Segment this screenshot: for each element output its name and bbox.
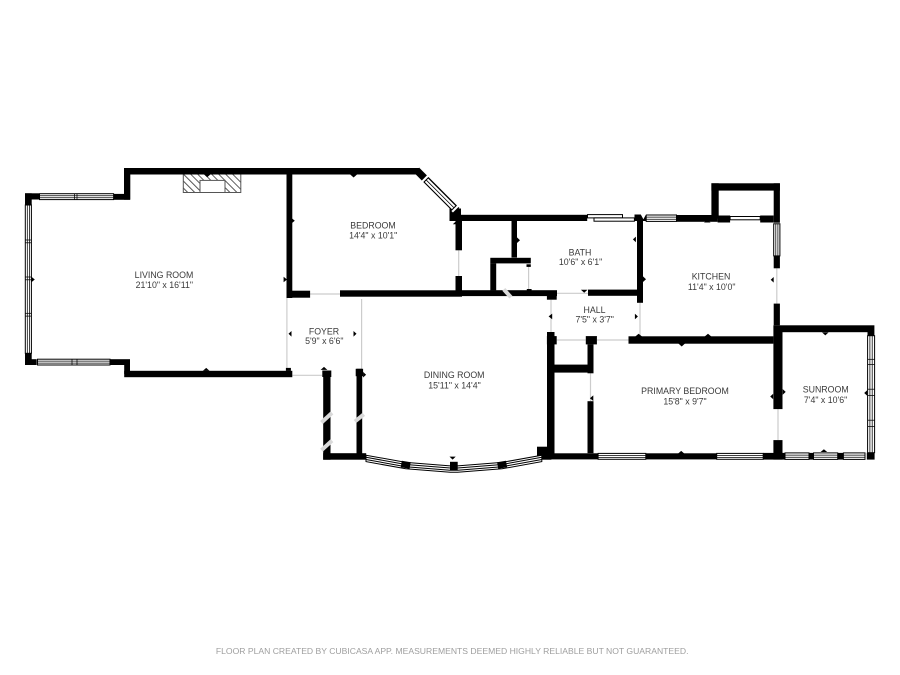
svg-text:BATH: BATH bbox=[569, 247, 592, 257]
svg-text:FOYER: FOYER bbox=[309, 326, 339, 336]
svg-text:7'4" x 10'6": 7'4" x 10'6" bbox=[804, 395, 847, 405]
svg-text:KITCHEN: KITCHEN bbox=[692, 272, 731, 282]
svg-text:PRIMARY BEDROOM: PRIMARY BEDROOM bbox=[641, 386, 729, 396]
svg-text:7'5" x 3'7": 7'5" x 3'7" bbox=[575, 314, 613, 324]
svg-text:FLOOR PLAN CREATED BY CUBICASA: FLOOR PLAN CREATED BY CUBICASA APP. MEAS… bbox=[216, 646, 689, 656]
svg-text:14'4" x 10'1": 14'4" x 10'1" bbox=[349, 231, 397, 241]
svg-text:SUNROOM: SUNROOM bbox=[803, 385, 849, 395]
svg-text:15'8" x 9'7": 15'8" x 9'7" bbox=[663, 397, 706, 407]
svg-text:15'11" x 14'4": 15'11" x 14'4" bbox=[428, 381, 481, 391]
svg-text:10'6" x 6'1": 10'6" x 6'1" bbox=[559, 257, 602, 267]
svg-text:21'10" x 16'11": 21'10" x 16'11" bbox=[136, 280, 193, 290]
svg-text:DINING ROOM: DINING ROOM bbox=[424, 370, 485, 380]
svg-text:5'9" x 6'6": 5'9" x 6'6" bbox=[305, 336, 343, 346]
svg-text:BEDROOM: BEDROOM bbox=[350, 221, 395, 231]
svg-text:11'4" x 10'0": 11'4" x 10'0" bbox=[688, 282, 736, 292]
svg-text:LIVING ROOM: LIVING ROOM bbox=[135, 270, 194, 280]
